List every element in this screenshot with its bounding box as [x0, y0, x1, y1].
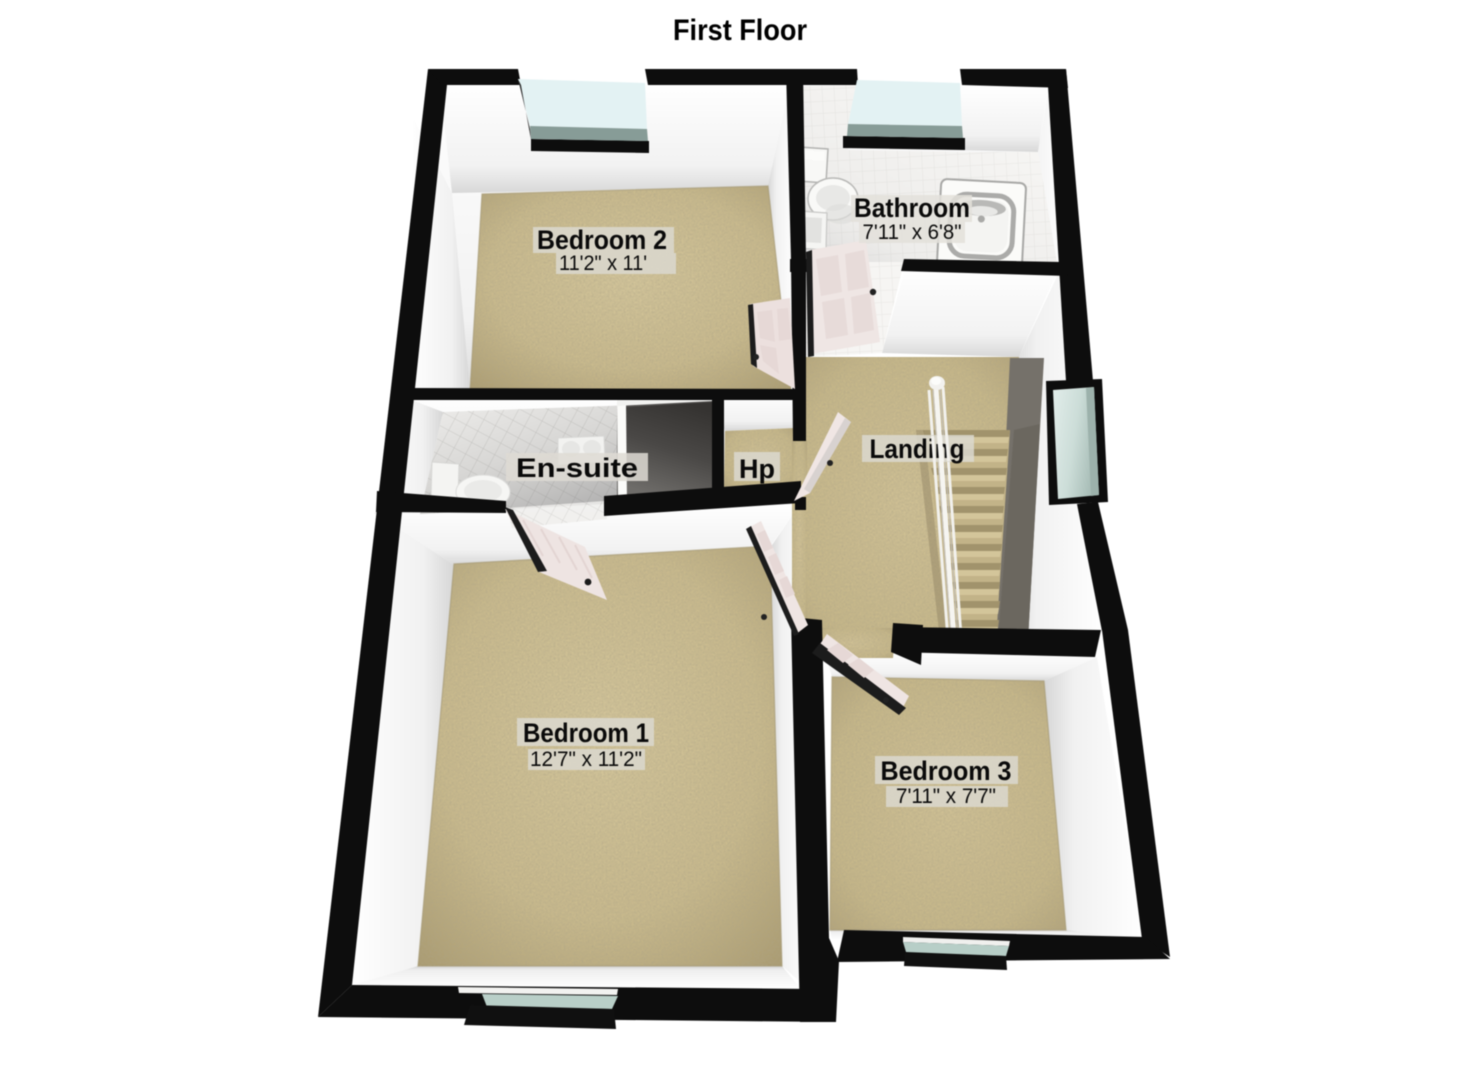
svg-text:Bedroom 1: Bedroom 1: [523, 718, 649, 748]
svg-text:7'11" x 7'7": 7'11" x 7'7": [896, 785, 996, 808]
svg-text:Hp: Hp: [739, 454, 775, 484]
svg-text:7'11" x 6'8": 7'11" x 6'8": [863, 221, 962, 244]
svg-text:Bedroom 2: Bedroom 2: [537, 225, 667, 255]
svg-text:11'2" x 11': 11'2" x 11': [559, 252, 647, 275]
svg-text:Landing: Landing: [870, 434, 965, 464]
svg-text:12'7" x 11'2": 12'7" x 11'2": [530, 748, 642, 771]
svg-text:Bathroom: Bathroom: [854, 193, 970, 223]
svg-text:First Floor: First Floor: [673, 14, 807, 47]
svg-text:Bedroom 3: Bedroom 3: [881, 756, 1012, 786]
svg-text:En-suite: En-suite: [516, 453, 638, 483]
